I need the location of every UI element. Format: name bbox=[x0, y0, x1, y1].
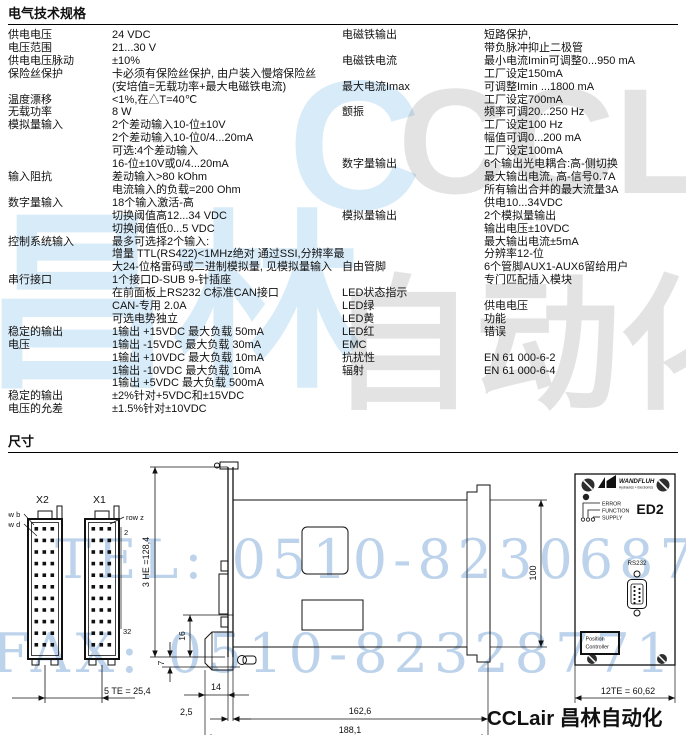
spec-label: EMC bbox=[342, 339, 484, 352]
spec-value: 21...30 V bbox=[112, 42, 342, 55]
spec-label-line: LED状态指示 bbox=[342, 287, 484, 300]
spec-label-line: 电磁铁电流 bbox=[342, 55, 484, 68]
dim-188-1-label: 188,1 bbox=[339, 725, 362, 735]
row-d-label: row d bbox=[8, 520, 20, 529]
spec-value: EN 61 000-6-4 bbox=[484, 365, 678, 378]
spec-value-line: 1输出 +15VDC 最大负载 50mA bbox=[112, 326, 342, 339]
wandfluh-logo-text: WANDFLUH bbox=[619, 478, 655, 485]
front-panel-view: WANDFLUH Hydraulics + Electronics ERROR … bbox=[575, 474, 675, 703]
spec-label-line: 模拟量输出 bbox=[342, 210, 484, 223]
spec-label-line: EMC bbox=[342, 339, 484, 352]
spec-value-line: 可选:4个差动输入 bbox=[112, 145, 342, 158]
spec-row: 电磁铁输出短路保护,带负脉冲抑止二极管 bbox=[342, 29, 678, 55]
spec-label: LED红 bbox=[342, 326, 484, 339]
spec-label-line: 辐射 bbox=[342, 365, 484, 378]
spec-value-line: EN 61 000-6-2 bbox=[484, 352, 678, 365]
spec-label-line: 自由管脚 bbox=[342, 261, 484, 274]
spec-label-line: 稳定的输出 bbox=[8, 326, 112, 339]
spec-value: 频率可调20...250 Hz工厂设定100 Hz幅值可调0...200 mA工… bbox=[484, 106, 678, 158]
spec-row: 保险丝保护卡必须有保险丝保护, 由户装入慢熔保险丝(安培值=无载功率+最大电磁铁… bbox=[8, 68, 342, 94]
spec-label-line: 供电电压 bbox=[8, 29, 112, 42]
spec-value: 6个输出光电耦合:高-侧切换最大输出电流, 高-信号0.7A所有输出合并的最大流… bbox=[484, 158, 678, 210]
spec-row: 自由管脚6个管脚AUX1-AUX6留给用户专门匹配插入模块 bbox=[342, 261, 678, 287]
spec-value-line: 增量 TTL(RS422)<1MHz绝对 通过SSI,分辨率最 bbox=[112, 248, 345, 261]
spec-row: LED红错误 bbox=[342, 326, 678, 339]
spec-table: 供电电压24 VDC电压范围21...30 V供电电压脉动±10%保险丝保护卡必… bbox=[8, 29, 678, 416]
spec-row: 最大电流Imax可调整Imin ...1800 mA工厂设定700mA bbox=[342, 81, 678, 107]
spec-row: 颤振频率可调20...250 Hz工厂设定100 Hz幅值可调0...200 m… bbox=[342, 106, 678, 158]
spec-value-line: 2个差动输入10-位±10V bbox=[112, 119, 342, 132]
spec-row: 控制系统输入最多可选择2个输入:增量 TTL(RS422)<1MHz绝对 通过S… bbox=[8, 236, 342, 275]
spec-label: 电压范围 bbox=[8, 42, 112, 55]
spec-value-line: 可选电势独立 bbox=[112, 313, 342, 326]
spec-value-line: 6个管脚AUX1-AUX6留给用户 bbox=[484, 261, 678, 274]
pcb-component bbox=[302, 600, 363, 630]
pcb-component bbox=[302, 527, 348, 574]
spec-label: 供电电压 bbox=[8, 29, 112, 42]
dim-16-label: 16 bbox=[177, 631, 187, 641]
spec-row: 稳定的输出电压的允差±2%针对+5VDC和±15VDC±1.5%针对±10VDC bbox=[8, 390, 342, 416]
model-label: ED2 bbox=[636, 501, 663, 517]
spec-label: 保险丝保护 bbox=[8, 68, 112, 94]
spec-row: EMC bbox=[342, 339, 678, 352]
card-handle bbox=[205, 632, 233, 670]
dim-162-6-label: 162,6 bbox=[349, 706, 372, 716]
spec-value: 功能 bbox=[484, 313, 678, 326]
led-function-label: FUNCTION bbox=[602, 509, 630, 515]
spec-value-line: 2个差动输入10-位0/4...20mA bbox=[112, 132, 342, 145]
spec-row: LED绿供电电压 bbox=[342, 300, 678, 313]
spec-row: 模拟量输入2个差动输入10-位±10V2个差动输入10-位0/4...20mA可… bbox=[8, 119, 342, 171]
spec-value-line: 6个输出光电耦合:高-侧切换 bbox=[484, 158, 678, 171]
spec-value-line: 最多可选择2个输入: bbox=[112, 236, 345, 249]
dim-7-label: 7 bbox=[156, 661, 166, 666]
section-rule bbox=[8, 452, 678, 453]
spec-label: 最大电流Imax bbox=[342, 81, 484, 107]
spec-label: 稳定的输出电压 bbox=[8, 326, 112, 391]
spec-label: 串行接口 bbox=[8, 274, 112, 326]
spec-value-line: 1输出 -10VDC 最大负载 10mA bbox=[112, 365, 342, 378]
spec-value-line: ±10% bbox=[112, 55, 342, 68]
spec-label-line: 供电电压脉动 bbox=[8, 55, 112, 68]
spec-value-line: 工厂设定100mA bbox=[484, 145, 678, 158]
wandfluh-logo-sub: Hydraulics + Electronics bbox=[619, 486, 654, 490]
spec-value-line: 最小电流Imin可调整0...950 mA bbox=[484, 55, 678, 68]
dim-3he-label: 3 HE =128,4 bbox=[141, 537, 151, 587]
spec-value: ±10% bbox=[112, 55, 342, 68]
spec-value-line: CAN-专用 2.0A bbox=[112, 300, 342, 313]
spec-label-line: 电压的允差 bbox=[8, 403, 112, 416]
connector-x2-label: X2 bbox=[36, 494, 49, 506]
spec-value: 18个输入激活-高切换阈值高12...34 VDC切换阈值低0...5 VDC bbox=[112, 197, 342, 236]
spec-value-line: 工厂设定150mA bbox=[484, 68, 678, 81]
spec-row: 数字量输入18个输入激活-高切换阈值高12...34 VDC切换阈值低0...5… bbox=[8, 197, 342, 236]
spec-value bbox=[484, 287, 678, 300]
spec-row: 温度漂移<1%,在△T=40℃ bbox=[8, 94, 342, 107]
spec-label-line: 电磁铁输出 bbox=[342, 29, 484, 42]
spec-label-line: 稳定的输出 bbox=[8, 390, 112, 403]
dim-12te bbox=[575, 665, 675, 703]
connector-x2-pins bbox=[35, 527, 55, 647]
spec-value-line: ±1.5%针对±10VDC bbox=[112, 403, 342, 416]
spec-label: LED绿 bbox=[342, 300, 484, 313]
spec-label-line: 模拟量输入 bbox=[8, 119, 112, 132]
spec-value-line: 1输出 +10VDC 最大负载 10mA bbox=[112, 352, 342, 365]
dimensions-drawing: X2 X1 row b row d row z 2 32 5 TE = 25,4 bbox=[8, 457, 678, 735]
spec-value-line: <1%,在△T=40℃ bbox=[112, 94, 342, 107]
spec-value: 8 W bbox=[112, 106, 342, 119]
spec-value-line: 大24-位格雷码或二进制模拟量, 见模拟量输入 bbox=[112, 261, 345, 274]
spec-value-line: 电流输入的负载=200 Ohm bbox=[112, 184, 342, 197]
spec-value-line: 最大输出电流±5mA bbox=[484, 236, 678, 249]
spec-label: 输入阻抗 bbox=[8, 171, 112, 197]
spec-label-line: 保险丝保护 bbox=[8, 68, 112, 81]
spec-value-line: 最大输出电流, 高-信号0.7A bbox=[484, 171, 678, 184]
spec-value-line: 1个接口D-SUB 9-针插座 bbox=[112, 274, 342, 287]
dim-100-label: 100 bbox=[528, 566, 538, 581]
spec-value-line: 输出电压±10VDC bbox=[484, 223, 678, 236]
spec-label: 自由管脚 bbox=[342, 261, 484, 287]
spec-label-line: 输入阻抗 bbox=[8, 171, 112, 184]
spec-label: LED状态指示 bbox=[342, 287, 484, 300]
spec-value: 错误 bbox=[484, 326, 678, 339]
spec-value-line: 幅值可调0...200 mA bbox=[484, 132, 678, 145]
spec-value: 1输出 +15VDC 最大负载 50mA1输出 -15VDC 最大负载 30mA… bbox=[112, 326, 342, 391]
spec-value-line: 分辨率12-位 bbox=[484, 248, 678, 261]
spec-value-line: ±2%针对+5VDC和±15VDC bbox=[112, 390, 342, 403]
db9-connector bbox=[628, 571, 647, 616]
spec-value-line: 所有输出合并的最大流量3A bbox=[484, 184, 678, 197]
card-side-view bbox=[205, 462, 490, 670]
spec-label: 数字量输出 bbox=[342, 158, 484, 210]
spec-label: 辐射 bbox=[342, 365, 484, 378]
spec-value: EN 61 000-6-2 bbox=[484, 352, 678, 365]
spec-label-line: 数字量输入 bbox=[8, 197, 112, 210]
spec-value-line: 在前面板上RS232 C标准CAN接口 bbox=[112, 287, 342, 300]
spec-row: 输入阻抗差动输入>80 kOhm电流输入的负载=200 Ohm bbox=[8, 171, 342, 197]
spec-label-line: 颤振 bbox=[342, 106, 484, 119]
spec-label-line: 数字量输出 bbox=[342, 158, 484, 171]
spec-label: 稳定的输出电压的允差 bbox=[8, 390, 112, 416]
spec-value-line: 供电10...34VDC bbox=[484, 197, 678, 210]
spec-value: 可调整Imin ...1800 mA工厂设定700mA bbox=[484, 81, 678, 107]
spec-value-line: 8 W bbox=[112, 106, 342, 119]
spec-value-line: 供电电压 bbox=[484, 300, 678, 313]
spec-value: 1个接口D-SUB 9-针插座在前面板上RS232 C标准CAN接口CAN-专用… bbox=[112, 274, 342, 326]
spec-value-line: 可调整Imin ...1800 mA bbox=[484, 81, 678, 94]
spec-label-line: 控制系统输入 bbox=[8, 236, 112, 249]
spec-value: 6个管脚AUX1-AUX6留给用户专门匹配插入模块 bbox=[484, 261, 678, 287]
rs232-label: RS232 bbox=[628, 560, 647, 567]
spec-label: 电磁铁输出 bbox=[342, 29, 484, 55]
spec-value-line: (安培值=无载功率+最大电磁铁电流) bbox=[112, 81, 342, 94]
spec-row: 稳定的输出电压1输出 +15VDC 最大负载 50mA1输出 -15VDC 最大… bbox=[8, 326, 342, 391]
cclair-logo: CCLair 昌林自动化 bbox=[487, 706, 663, 730]
spec-value: 短路保护,带负脉冲抑止二极管 bbox=[484, 29, 678, 55]
controller-label: Controller bbox=[586, 645, 610, 651]
spec-row: 供电电压脉动±10% bbox=[8, 55, 342, 68]
spec-label-line: 温度漂移 bbox=[8, 94, 112, 107]
spec-row: 电压范围21...30 V bbox=[8, 42, 342, 55]
spec-value-line: 18个输入激活-高 bbox=[112, 197, 342, 210]
spec-value-line: 切换阈值低0...5 VDC bbox=[112, 223, 342, 236]
led-legend-icon bbox=[581, 503, 600, 521]
spec-label: 颤振 bbox=[342, 106, 484, 158]
spec-row: 模拟量输出2个模拟量输出输出电压±10VDC最大输出电流±5mA分辨率12-位 bbox=[342, 210, 678, 262]
spec-value-line: 1输出 +5VDC 最大负载 500mA bbox=[112, 377, 342, 390]
section-title-electrical: 电气技术规格 bbox=[8, 6, 678, 22]
row-b-label: row b bbox=[8, 510, 20, 519]
connector-x1-label: X1 bbox=[93, 494, 106, 506]
connector-x1-pins bbox=[92, 527, 112, 647]
spec-value-line: EN 61 000-6-4 bbox=[484, 365, 678, 378]
spec-label-line: 无载功率 bbox=[8, 106, 112, 119]
dim-12te-label: 12TE = 60,62 bbox=[601, 686, 655, 696]
wandfluh-logo-icon bbox=[598, 475, 616, 488]
spec-value-line: 24 VDC bbox=[112, 29, 342, 42]
spec-label-line: LED黄 bbox=[342, 313, 484, 326]
spec-value-line: 卡必须有保险丝保护, 由户装入慢熔保险丝 bbox=[112, 68, 342, 81]
spec-value: 供电电压 bbox=[484, 300, 678, 313]
spec-row: 串行接口1个接口D-SUB 9-针插座在前面板上RS232 C标准CAN接口CA… bbox=[8, 274, 342, 326]
dim-5te-label: 5 TE = 25,4 bbox=[104, 686, 151, 696]
spec-value: 2个差动输入10-位±10V2个差动输入10-位0/4...20mA可选:4个差… bbox=[112, 119, 342, 171]
spec-label: 数字量输入 bbox=[8, 197, 112, 236]
spec-value bbox=[484, 339, 678, 352]
spec-label: 供电电压脉动 bbox=[8, 55, 112, 68]
led-indicator bbox=[583, 494, 589, 500]
spec-value: 差动输入>80 kOhm电流输入的负载=200 Ohm bbox=[112, 171, 342, 197]
spec-value: 最小电流Imin可调整0...950 mA工厂设定150mA bbox=[484, 55, 678, 81]
spec-row: 供电电压24 VDC bbox=[8, 29, 342, 42]
section-rule bbox=[8, 24, 678, 25]
spec-label: 模拟量输出 bbox=[342, 210, 484, 262]
spec-value-line: 错误 bbox=[484, 326, 678, 339]
spec-label-line: 电压范围 bbox=[8, 42, 112, 55]
db9-pins bbox=[633, 586, 640, 604]
spec-label: LED黄 bbox=[342, 313, 484, 326]
spec-value-line: 1输出 -15VDC 最大负载 30mA bbox=[112, 339, 342, 352]
spec-label: 控制系统输入 bbox=[8, 236, 112, 275]
spec-value-line: 切换阈值高12...34 VDC bbox=[112, 210, 342, 223]
spec-value: 24 VDC bbox=[112, 29, 342, 42]
spec-value: 2个模拟量输出输出电压±10VDC最大输出电流±5mA分辨率12-位 bbox=[484, 210, 678, 262]
spec-value-line: 工厂设定100 Hz bbox=[484, 119, 678, 132]
position-label: Position bbox=[586, 637, 605, 643]
dim-extensions bbox=[205, 657, 488, 735]
spec-label-line: 电压 bbox=[8, 339, 112, 352]
datasheet-page: 昌林 C CCLair 自动化 TEL: 0510-82306871 FAX: … bbox=[0, 0, 686, 735]
spec-row: 辐射EN 61 000-6-4 bbox=[342, 365, 678, 378]
spec-label: 温度漂移 bbox=[8, 94, 112, 107]
spec-row: 无载功率8 W bbox=[8, 106, 342, 119]
row-z-label: row z bbox=[126, 513, 144, 522]
spec-column-right: 电磁铁输出短路保护,带负脉冲抑止二极管电磁铁电流最小电流Imin可调整0...9… bbox=[342, 29, 678, 416]
spec-label-line: LED红 bbox=[342, 326, 484, 339]
spec-label: 无载功率 bbox=[8, 106, 112, 119]
spec-label-line: 串行接口 bbox=[8, 274, 112, 287]
spec-label: 抗扰性 bbox=[342, 352, 484, 365]
pin-2-label: 2 bbox=[124, 528, 128, 537]
connector-x2 bbox=[28, 506, 62, 703]
spec-label-line: LED绿 bbox=[342, 300, 484, 313]
section-title-dimensions: 尺寸 bbox=[8, 434, 678, 450]
page-content: 电气技术规格 供电电压24 VDC电压范围21...30 V供电电压脉动±10%… bbox=[0, 0, 686, 735]
spec-value-line: 带负脉冲抑止二极管 bbox=[484, 42, 678, 55]
dim-3he bbox=[150, 467, 228, 657]
spec-value-line: 专门匹配插入模块 bbox=[484, 274, 678, 287]
position-controller-box bbox=[581, 632, 619, 654]
spec-value-line: 2个模拟量输出 bbox=[484, 210, 678, 223]
spec-value: <1%,在△T=40℃ bbox=[112, 94, 342, 107]
spec-label-line: 抗扰性 bbox=[342, 352, 484, 365]
spec-label: 电磁铁电流 bbox=[342, 55, 484, 81]
spec-value-line: 工厂设定700mA bbox=[484, 94, 678, 107]
connector-x1 bbox=[85, 506, 119, 703]
spec-value-line: 功能 bbox=[484, 313, 678, 326]
dim-2-5-label: 2,5 bbox=[180, 707, 193, 717]
spec-row: LED黄功能 bbox=[342, 313, 678, 326]
spec-row: 电磁铁电流最小电流Imin可调整0...950 mA工厂设定150mA bbox=[342, 55, 678, 81]
dim-14-label: 14 bbox=[211, 682, 221, 692]
dim-100 bbox=[490, 500, 547, 647]
spec-label: 模拟量输入 bbox=[8, 119, 112, 171]
spec-value-line: 差动输入>80 kOhm bbox=[112, 171, 342, 184]
spec-value-line: 频率可调20...250 Hz bbox=[484, 106, 678, 119]
spec-column-left: 供电电压24 VDC电压范围21...30 V供电电压脉动±10%保险丝保护卡必… bbox=[8, 29, 342, 416]
spec-row: 数字量输出6个输出光电耦合:高-侧切换最大输出电流, 高-信号0.7A所有输出合… bbox=[342, 158, 678, 210]
spec-value-line: 21...30 V bbox=[112, 42, 342, 55]
led-supply-label: SUPPLY bbox=[602, 516, 623, 522]
spec-value: ±2%针对+5VDC和±15VDC±1.5%针对±10VDC bbox=[112, 390, 342, 416]
spec-value-line: 16-位±10V或0/4...20mA bbox=[112, 158, 342, 171]
led-error-label: ERROR bbox=[602, 502, 621, 508]
pin-32-label: 32 bbox=[123, 627, 131, 636]
spec-value-line: 短路保护, bbox=[484, 29, 678, 42]
spec-label-line: 最大电流Imax bbox=[342, 81, 484, 94]
spec-value: 卡必须有保险丝保护, 由户装入慢熔保险丝(安培值=无载功率+最大电磁铁电流) bbox=[112, 68, 342, 94]
spec-value: 最多可选择2个输入:增量 TTL(RS422)<1MHz绝对 通过SSI,分辨率… bbox=[112, 236, 345, 275]
spec-row: LED状态指示 bbox=[342, 287, 678, 300]
spec-row: 抗扰性EN 61 000-6-2 bbox=[342, 352, 678, 365]
